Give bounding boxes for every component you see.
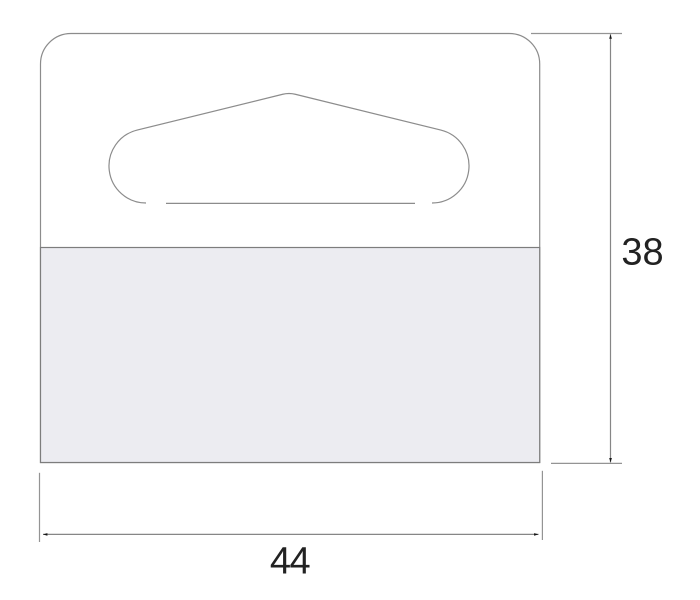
svg-text:44: 44 <box>270 541 311 583</box>
svg-text:38: 38 <box>621 232 663 274</box>
